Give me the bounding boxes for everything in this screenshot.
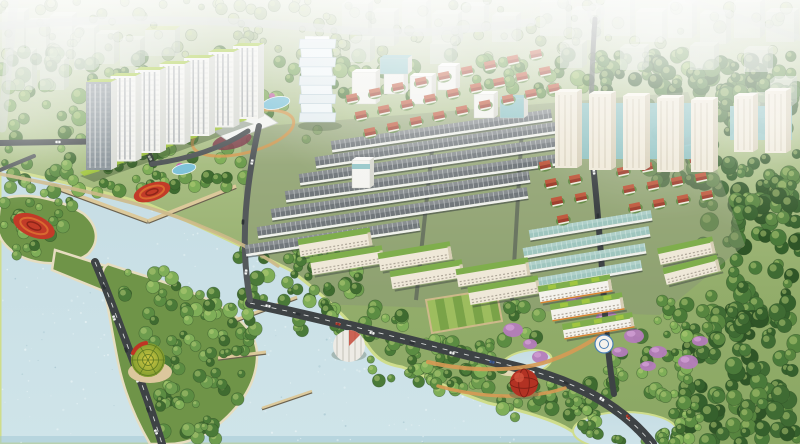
water-sparkle	[166, 217, 168, 219]
tree	[532, 308, 546, 322]
tree	[158, 289, 167, 298]
water-sparkle	[188, 282, 190, 284]
tree-highlight	[763, 336, 769, 342]
water-sparkle	[421, 441, 422, 442]
tree	[158, 266, 169, 277]
tree-highlight	[144, 308, 150, 314]
tree-highlight	[685, 376, 689, 380]
tree-highlight	[141, 328, 147, 334]
water-sparkle	[15, 278, 17, 280]
water-sparkle	[41, 339, 42, 340]
tree-highlight	[233, 394, 239, 400]
tree-highlight	[728, 419, 735, 426]
tree	[727, 306, 738, 317]
tree-highlight	[739, 283, 744, 288]
tree-highlight	[690, 325, 695, 330]
tree	[706, 290, 718, 302]
water-sparkle	[184, 233, 185, 234]
tree-highlight	[220, 336, 225, 341]
tree	[669, 408, 680, 419]
tree	[283, 254, 293, 264]
water-sparkle	[77, 296, 79, 298]
tree-highlight	[786, 350, 791, 355]
water-sparkle	[358, 370, 360, 372]
blossom-tree-purple	[692, 336, 708, 346]
tree-highlight	[153, 172, 157, 176]
car	[242, 219, 245, 224]
tree	[309, 285, 320, 296]
tree-highlight	[711, 422, 717, 428]
tree	[435, 353, 445, 363]
tree	[181, 423, 194, 436]
tree-highlight	[219, 331, 224, 336]
water-sparkle	[26, 286, 28, 288]
water-sparkle	[29, 397, 30, 398]
tree	[676, 424, 686, 434]
tree-highlight	[782, 428, 789, 435]
tree-highlight	[325, 283, 329, 287]
tree-highlight	[369, 366, 373, 370]
tree	[496, 402, 510, 416]
tree-highlight	[565, 410, 571, 416]
tree	[671, 349, 679, 357]
water-sparkle	[267, 354, 269, 356]
tree-highlight	[662, 429, 665, 432]
water-sparkle	[113, 405, 114, 406]
tree-highlight	[685, 434, 690, 439]
tree-highlight	[24, 245, 28, 249]
water-sparkle	[335, 359, 336, 360]
tree-highlight	[133, 176, 137, 180]
tree-highlight	[483, 382, 489, 388]
water-sparkle	[479, 405, 481, 407]
tree	[217, 379, 228, 390]
tree-highlight	[784, 280, 788, 284]
tree	[755, 307, 768, 320]
tree	[738, 313, 749, 324]
tree	[395, 309, 408, 322]
tree-highlight	[161, 178, 165, 182]
water-sparkle	[197, 232, 199, 234]
tree	[296, 256, 307, 267]
water-sparkle	[425, 409, 427, 411]
water-sparkle	[350, 439, 352, 441]
water-sparkle	[82, 388, 84, 390]
tree-highlight	[279, 295, 285, 301]
tree-highlight	[182, 390, 188, 396]
tree	[659, 390, 671, 402]
tree-highlight	[587, 431, 590, 434]
tree-highlight	[184, 316, 189, 321]
tree	[694, 424, 701, 431]
tree-highlight	[205, 301, 210, 306]
tree-highlight	[414, 377, 419, 382]
tree-highlight	[445, 370, 449, 374]
water-sparkle	[29, 416, 30, 417]
tree	[785, 349, 796, 360]
tree-highlight	[659, 369, 663, 373]
tree-highlight	[682, 331, 688, 337]
water-sparkle	[290, 382, 291, 383]
tree-highlight	[774, 387, 782, 395]
tree-highlight	[204, 417, 208, 421]
water-sparkle	[85, 321, 87, 323]
water-sparkle	[84, 398, 86, 400]
water-sparkle	[6, 269, 8, 271]
tree-highlight	[718, 428, 724, 434]
tree-highlight	[748, 363, 755, 370]
tree-highlight	[698, 306, 704, 312]
tree-highlight	[752, 389, 760, 397]
tree-highlight	[758, 399, 763, 404]
tree-highlight	[181, 288, 187, 294]
water-sparkle	[26, 345, 27, 346]
tree-highlight	[505, 303, 511, 309]
tree-highlight	[293, 285, 298, 290]
water-sparkle	[403, 370, 404, 371]
water-sparkle	[324, 359, 325, 360]
tree-highlight	[251, 272, 258, 279]
tree-highlight	[239, 172, 245, 178]
water-sparkle	[389, 425, 390, 426]
tree-highlight	[225, 350, 228, 353]
tree-highlight	[239, 289, 245, 295]
tree	[766, 401, 784, 419]
tree-highlight	[197, 291, 201, 295]
tree-highlight	[195, 371, 201, 377]
water-sparkle	[80, 312, 82, 314]
tree	[618, 371, 629, 382]
water-sparkle	[281, 396, 283, 398]
tree-highlight	[727, 359, 735, 367]
tree-highlight	[680, 389, 686, 395]
tree-highlight	[781, 296, 788, 303]
tree-highlight	[310, 286, 315, 291]
blossom-tree-purple	[523, 339, 537, 349]
tree-highlight	[120, 290, 126, 296]
tree-highlight	[728, 391, 735, 398]
tree-highlight	[150, 337, 155, 342]
blossom-highlight	[614, 348, 621, 353]
tree-highlight	[355, 274, 359, 278]
tree-highlight	[447, 337, 453, 343]
tree	[771, 385, 789, 403]
water-sparkle	[269, 350, 271, 352]
water-sparkle	[411, 424, 413, 426]
water-sparkle	[434, 419, 435, 420]
tree-highlight	[305, 273, 309, 277]
water-sparkle	[21, 373, 23, 375]
water-sparkle	[76, 403, 77, 404]
red-sphere-pavilion	[510, 369, 538, 397]
tree-highlight	[167, 300, 172, 305]
tree-highlight	[144, 165, 149, 170]
tree	[413, 376, 425, 388]
tree-highlight	[243, 309, 249, 315]
car-windshield	[597, 215, 600, 216]
scene-canvas: Aerial 3D architectural rendering of a l…	[0, 0, 800, 444]
tree	[324, 282, 332, 290]
tree	[368, 365, 377, 374]
tree-highlight	[683, 350, 687, 354]
tree	[686, 409, 695, 418]
water-sparkle	[513, 438, 515, 440]
water-sparkle	[95, 372, 96, 373]
water-sparkle	[195, 266, 196, 267]
water-sparkle	[157, 243, 159, 245]
water-sparkle	[275, 329, 276, 330]
tree-highlight	[727, 381, 733, 387]
water-sparkle	[405, 428, 407, 430]
water-sparkle	[89, 292, 91, 294]
tree	[563, 409, 576, 422]
tree-highlight	[670, 409, 675, 414]
blossom-highlight	[681, 356, 690, 362]
water-sparkle	[318, 371, 320, 373]
tree-highlight	[382, 315, 386, 319]
water-sparkle	[257, 261, 259, 263]
tree	[739, 344, 751, 356]
tree	[167, 335, 177, 345]
water-sparkle	[216, 248, 218, 250]
tree-highlight	[594, 430, 599, 435]
tree-highlight	[757, 309, 763, 315]
tree	[203, 299, 215, 311]
tree-highlight	[239, 371, 242, 374]
tree	[146, 280, 160, 294]
water-sparkle	[454, 427, 455, 428]
water-sparkle	[363, 368, 365, 370]
water-sparkle	[346, 402, 347, 403]
tree-highlight	[732, 255, 738, 261]
tree-highlight	[782, 289, 787, 294]
tree-highlight	[566, 399, 570, 403]
tree-highlight	[487, 344, 491, 348]
tree-highlight	[193, 401, 196, 404]
tree-highlight	[695, 380, 700, 385]
water-sparkle	[269, 300, 271, 302]
tree-highlight	[531, 332, 537, 338]
tree-highlight	[208, 288, 214, 294]
water-sparkle	[345, 425, 347, 427]
tree	[663, 331, 670, 338]
tree	[695, 414, 704, 423]
water-sparkle	[56, 428, 58, 430]
tree	[725, 357, 743, 375]
sphere-highlight	[514, 373, 524, 383]
tree-highlight	[750, 263, 756, 269]
water-sparkle	[331, 342, 332, 343]
tree-highlight	[207, 359, 211, 363]
tree	[354, 273, 363, 282]
tree-highlight	[305, 296, 311, 302]
tree	[150, 316, 159, 325]
tree-highlight	[660, 438, 664, 442]
blossom-highlight	[627, 330, 636, 336]
tree-highlight	[687, 410, 691, 414]
water-sparkle	[403, 421, 405, 423]
tree-highlight	[714, 391, 720, 397]
tree	[696, 304, 709, 317]
tree-highlight	[779, 319, 786, 326]
tree-highlight	[655, 318, 658, 321]
tree-highlight	[157, 402, 162, 407]
water-sparkle	[17, 399, 19, 401]
water-sparkle	[27, 391, 28, 392]
tree	[381, 314, 389, 322]
tree-highlight	[676, 419, 681, 424]
tree-highlight	[360, 318, 366, 324]
blossom-tree-purple	[612, 347, 628, 357]
tree-highlight	[644, 348, 650, 354]
blossom-highlight	[642, 362, 649, 367]
tree-highlight	[668, 299, 672, 303]
tree	[755, 421, 771, 437]
tree-highlight	[50, 217, 54, 221]
tree-highlight	[207, 348, 212, 353]
tree-highlight	[775, 352, 782, 359]
water-sparkle	[29, 360, 31, 362]
tree-highlight	[671, 322, 675, 326]
tree-highlight	[369, 307, 375, 313]
tree-highlight	[740, 345, 746, 351]
tree-highlight	[56, 210, 60, 214]
water-sparkle	[344, 387, 346, 389]
tree-highlight	[692, 403, 696, 407]
tree-highlight	[151, 317, 155, 321]
water-sparkle	[295, 430, 297, 432]
water-sparkle	[368, 364, 370, 366]
tree	[593, 429, 604, 440]
tree-highlight	[434, 370, 441, 377]
water-sparkle	[70, 380, 72, 382]
tree	[716, 427, 729, 440]
tree-highlight	[202, 424, 205, 427]
tree	[761, 334, 775, 348]
water-sparkle	[422, 436, 424, 438]
tree-highlight	[672, 349, 675, 352]
tree	[654, 317, 662, 325]
tree-highlight	[327, 311, 332, 316]
tree-highlight	[770, 264, 777, 271]
tree-highlight	[288, 288, 291, 291]
tree	[119, 288, 132, 301]
tree-highlight	[681, 299, 688, 306]
tree-highlight	[701, 435, 709, 443]
tree	[545, 401, 560, 416]
tree-highlight	[728, 308, 733, 313]
water-sparkle	[356, 369, 358, 371]
tree-highlight	[772, 424, 779, 431]
water-sparkle	[50, 395, 51, 396]
tree-highlight	[409, 366, 412, 369]
tree-highlight	[741, 409, 747, 415]
tree-highlight	[200, 351, 205, 356]
tree-highlight	[160, 290, 164, 294]
tree-highlight	[682, 323, 686, 327]
tree	[350, 283, 361, 294]
tree-highlight	[498, 403, 504, 409]
blossom-highlight	[651, 347, 659, 352]
tree-highlight	[642, 356, 648, 362]
tree-highlight	[563, 392, 566, 395]
tree-highlight	[659, 433, 663, 437]
tree-highlight	[374, 375, 380, 381]
tree-highlight	[742, 421, 749, 428]
water-sparkle	[70, 433, 71, 434]
water-sparkle	[68, 309, 70, 311]
water-sparkle	[329, 337, 331, 339]
blossom-highlight	[694, 337, 701, 342]
tree-highlight	[58, 221, 64, 227]
water-sparkle	[24, 349, 26, 351]
water-sparkle	[473, 400, 474, 401]
water-sparkle	[192, 234, 194, 236]
tree	[249, 271, 264, 286]
water-sparkle	[318, 365, 320, 367]
tree-highlight	[203, 172, 209, 178]
tree-highlight	[619, 372, 624, 377]
water-sparkle	[326, 339, 328, 341]
water-sparkle	[394, 424, 395, 425]
water-sparkle	[28, 380, 30, 382]
tree-highlight	[212, 369, 217, 374]
tree-highlight	[684, 342, 690, 348]
tree-highlight	[218, 380, 223, 385]
tree	[175, 400, 185, 410]
tree	[777, 318, 792, 333]
blossom-highlight	[506, 324, 515, 330]
tree-highlight	[285, 255, 290, 260]
water-sparkle	[187, 239, 188, 240]
tree-highlight	[260, 295, 264, 299]
tree-highlight	[173, 347, 177, 351]
tree-highlight	[478, 347, 483, 352]
water-sparkle	[102, 299, 104, 301]
water-sparkle	[98, 346, 99, 347]
tree-highlight	[168, 337, 173, 342]
tree-highlight	[697, 415, 701, 419]
water-sparkle	[323, 393, 324, 394]
tree	[193, 369, 206, 382]
tree-highlight	[340, 280, 346, 286]
tree-highlight	[742, 429, 746, 433]
blossom-tree-purple	[503, 323, 523, 337]
tree-highlight	[283, 278, 288, 283]
tree-highlight	[397, 310, 403, 316]
tree-highlight	[534, 310, 540, 316]
blossom-tree-purple	[649, 346, 667, 358]
water-sparkle	[73, 333, 75, 335]
car-windshield	[242, 221, 245, 222]
water-sparkle	[252, 265, 254, 267]
tree-highlight	[1, 222, 4, 225]
water-sparkle	[286, 414, 287, 415]
tree-highlight	[514, 399, 518, 403]
water-sparkle	[107, 257, 109, 259]
tree-highlight	[476, 342, 480, 346]
water-sparkle	[337, 439, 339, 441]
tree	[281, 276, 293, 288]
water-sparkle	[38, 360, 39, 361]
water-sparkle	[20, 442, 22, 444]
tree-highlight	[437, 354, 441, 358]
tree-highlight	[220, 350, 224, 354]
tree-highlight	[323, 306, 329, 312]
tree	[66, 200, 78, 212]
tree	[677, 396, 691, 410]
tree	[712, 390, 725, 403]
